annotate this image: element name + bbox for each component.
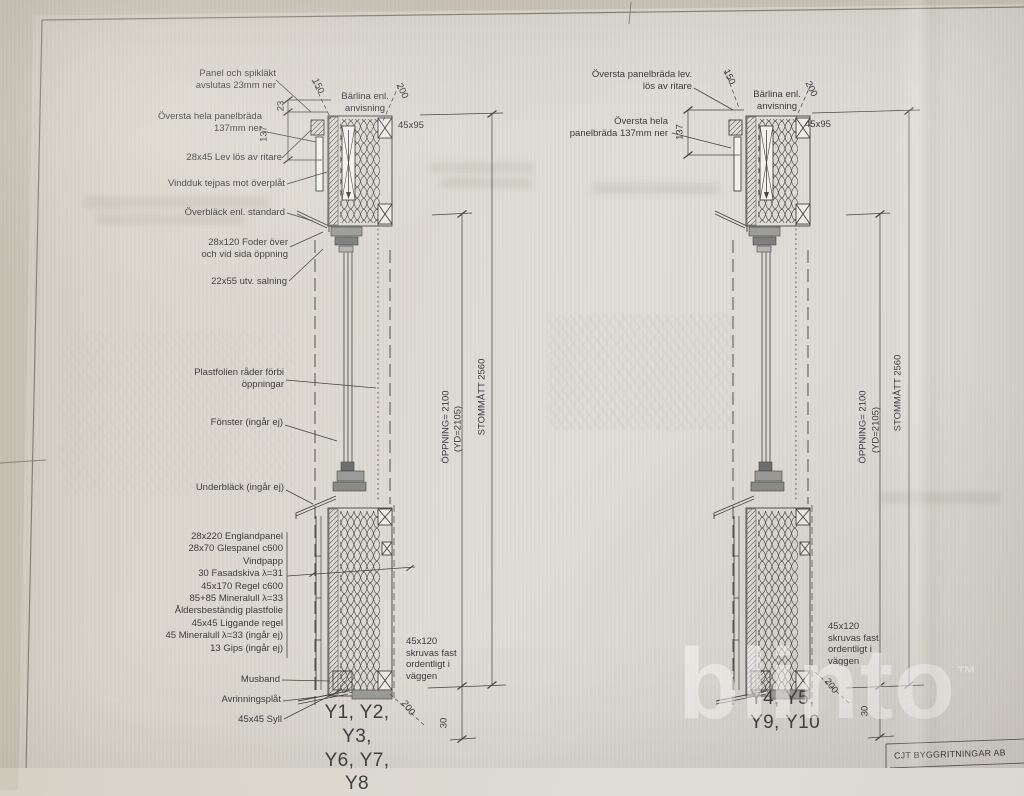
blinto-watermark: blinto™ <box>678 634 976 734</box>
dim-yd-right: (YD=2105) <box>871 407 882 453</box>
callout-panel-spiklakt: Panel och spikläkt avslutas 23mm ner <box>196 68 276 91</box>
callout-underblack: Underbläck (ingår ej) <box>196 482 284 494</box>
callout-barlina: Bärlina enl. anvisning <box>334 91 396 114</box>
callout-foder: 28x120 Foder över och vid sida öppning <box>201 237 288 260</box>
callout-fonster: Fönster (ingår ej) <box>211 417 283 429</box>
callout-barlina-right: Bärlina enl. anvisning <box>748 89 806 112</box>
layer-item: 85+85 Mineralull λ=33 <box>166 593 284 605</box>
left-detail-drawing <box>296 116 394 705</box>
layer-item: 13 Gips (ingår ej) <box>166 643 284 655</box>
dim-137-right: 137 <box>675 124 686 140</box>
layer-item: 28x220 Englandpanel <box>166 531 284 543</box>
window-ids-left: Y1, Y2, Y3, Y6, Y7, Y8 <box>310 701 404 796</box>
callout-salning: 22x55 utv. salning <box>211 276 287 288</box>
dim-yd: (YD=2105) <box>453 406 464 452</box>
callout-lev-los: 28x45 Lev lös av ritare <box>186 152 282 164</box>
callout-oversta-hela: Översta hela panelbräda 137mm ner <box>158 111 262 134</box>
dim-23: 23 <box>276 101 287 112</box>
dim-30: 30 <box>439 718 450 729</box>
right-detail-drawing <box>714 116 812 705</box>
layer-item: 45x170 Regel c600 <box>166 581 284 593</box>
dim-opening-right: ÖPPNING= 2100 <box>858 390 869 463</box>
layer-item: Vindpapp <box>166 556 284 568</box>
dim-stommatt-right: STOMMÅTT 2560 <box>893 355 904 432</box>
layer-item: 30 Fasadskiva λ=31 <box>166 568 284 580</box>
callout-overblack: Överbläck enl. standard <box>185 207 285 219</box>
callout-vindduk: Vindduk tejpas mot överplåt <box>168 178 285 190</box>
callout-oversta-panelbrada: Översta panelbräda lev. lös av ritare <box>592 69 692 92</box>
wall-layer-list: 28x220 Englandpanel 28x70 Glespanel c600… <box>166 531 284 655</box>
dim-opening: ÖPPNING= 2100 <box>441 390 452 463</box>
callout-oversta-hela-right: Översta hela panelbräda 137mm ner <box>570 116 668 139</box>
callout-plastfolie: Plastfolien råder förbi öppningar <box>194 367 284 390</box>
layer-item: 28x70 Glespanel c600 <box>166 543 284 555</box>
label-beam-size-right: 45x95 <box>805 119 831 131</box>
layer-item: 45x45 Liggande regel <box>166 618 284 630</box>
layer-item: 45 Mineralull λ=33 (ingår ej) <box>166 630 284 642</box>
watermark-text: blinto <box>678 628 956 740</box>
callout-syll: 45x45 Syll <box>238 714 282 726</box>
layer-item: Åldersbeständig plastfolie <box>166 605 284 617</box>
callout-musband: Musband <box>241 674 280 686</box>
callout-avrinningsplat: Avrinningsplåt <box>221 694 281 706</box>
photographed-construction-drawing: { "watermark": {"text": "blinto", "tm": … <box>0 0 1024 768</box>
trademark-symbol: ™ <box>956 663 976 685</box>
label-beam-size: 45x95 <box>398 120 424 132</box>
dim-stommatt: STOMMÅTT 2560 <box>477 359 488 436</box>
dim-137: 137 <box>259 126 270 142</box>
callout-skruvas: 45x120 skruvas fast ordentligt i väggen <box>406 636 457 682</box>
